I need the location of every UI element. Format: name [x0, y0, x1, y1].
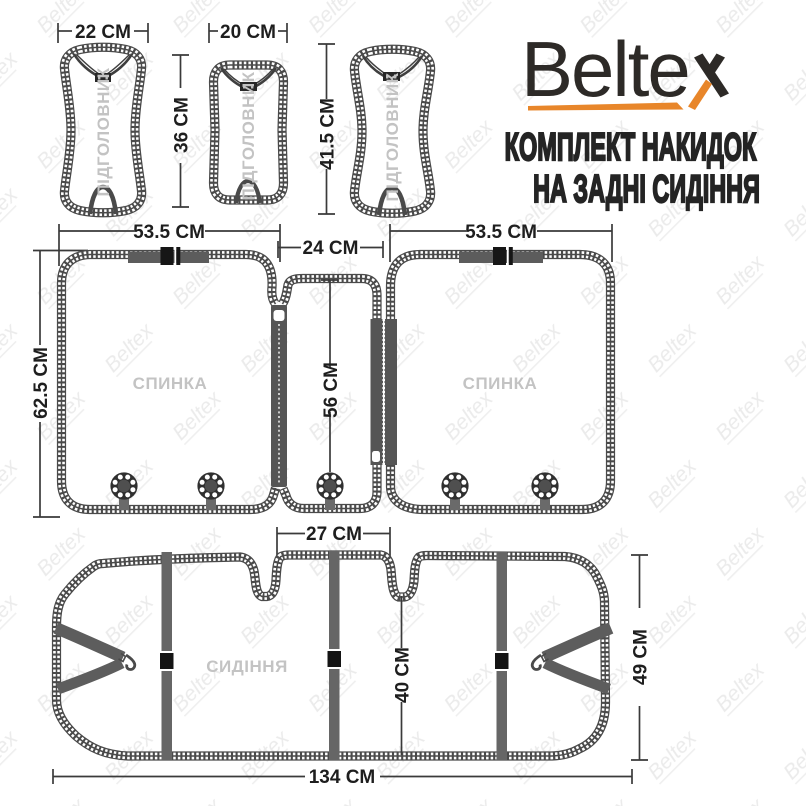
svg-text:41.5 CM: 41.5 CM [318, 98, 339, 170]
svg-text:ПІДГОЛОВНИК: ПІДГОЛОВНИК [94, 67, 113, 196]
svg-text:53.5 CM: 53.5 CM [133, 222, 205, 243]
svg-text:20 CM: 20 CM [220, 22, 276, 43]
svg-text:ПІДГОЛОВНИК: ПІДГОЛОВНИК [383, 72, 402, 201]
svg-text:53.5 CM: 53.5 CM [465, 222, 537, 243]
svg-text:49 CM: 49 CM [631, 629, 652, 685]
svg-text:СПИНКА: СПИНКА [463, 374, 538, 393]
svg-text:22 CM: 22 CM [75, 22, 131, 43]
svg-text:24 CM: 24 CM [303, 238, 359, 259]
svg-text:134 CM: 134 CM [309, 767, 376, 788]
svg-text:СИДІННЯ: СИДІННЯ [206, 657, 288, 676]
svg-text:ПІДГОЛОВНИК: ПІДГОЛОВНИК [239, 71, 258, 200]
svg-text:36 CM: 36 CM [172, 97, 193, 153]
svg-text:62.5 CM: 62.5 CM [31, 347, 52, 419]
svg-text:НА ЗАДНІ СИДІННЯ: НА ЗАДНІ СИДІННЯ [533, 167, 760, 211]
svg-text:КОМПЛЕКТ НАКИДОК: КОМПЛЕКТ НАКИДОК [505, 125, 757, 169]
svg-text:56 CM: 56 CM [321, 362, 342, 418]
svg-text:27 CM: 27 CM [306, 524, 362, 545]
svg-text:40 CM: 40 CM [393, 647, 414, 703]
svg-text:Belte: Belte [521, 25, 689, 113]
svg-text:СПИНКА: СПИНКА [133, 374, 208, 393]
